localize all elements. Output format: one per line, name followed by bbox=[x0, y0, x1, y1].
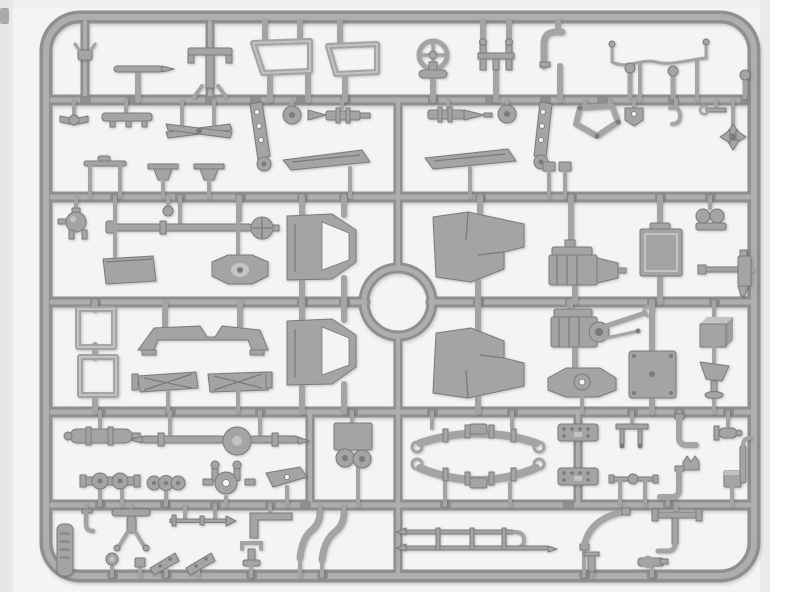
part-rivet-plate-2 bbox=[558, 468, 598, 485]
part-rivet-plate-1 bbox=[558, 424, 598, 441]
photo-corner-mark bbox=[0, 8, 9, 24]
part-molded-label-tag bbox=[57, 524, 73, 576]
sprue-photo-svg bbox=[0, 0, 800, 600]
model-kit-sprue-photo bbox=[0, 0, 800, 600]
